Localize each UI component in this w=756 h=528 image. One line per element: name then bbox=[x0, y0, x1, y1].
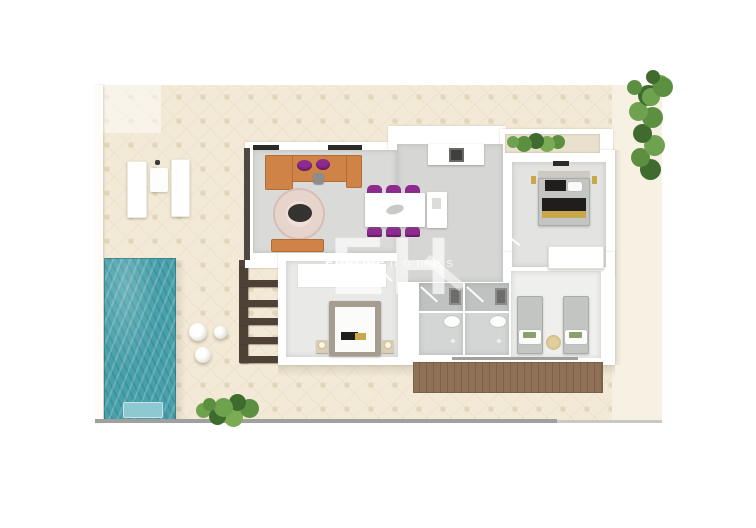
twin-bed-1 bbox=[517, 296, 543, 354]
potted-plant-bottom bbox=[203, 398, 216, 411]
bath2-drain bbox=[496, 338, 502, 344]
kitchen-sink bbox=[449, 148, 464, 162]
terrace-corner-patch bbox=[103, 85, 161, 133]
house-east-shadow bbox=[615, 150, 622, 365]
bed-right-pillow-white bbox=[568, 182, 582, 191]
wood-deck bbox=[413, 362, 603, 393]
corner-sofa-right-arm bbox=[346, 155, 362, 188]
lounger-side-table bbox=[150, 168, 168, 192]
pergola-beam-vertical bbox=[239, 260, 248, 363]
pool-step bbox=[123, 402, 163, 418]
master-pillow-gold bbox=[355, 333, 366, 340]
bedroom-right-dresser bbox=[548, 246, 604, 269]
twin-bed-2-plant-print bbox=[569, 332, 582, 338]
living-west-wall bbox=[244, 148, 250, 260]
bath2-shower-screen bbox=[465, 311, 509, 313]
wall-lamp-right bbox=[592, 176, 597, 184]
sofa-cushion-2 bbox=[316, 159, 330, 170]
speaker-dot bbox=[155, 160, 160, 165]
round-pouf-3 bbox=[195, 347, 211, 363]
window-lintel-1 bbox=[253, 145, 279, 150]
bath1-toilet bbox=[444, 316, 460, 327]
nightstand-lamp bbox=[319, 342, 325, 348]
coffee-table bbox=[288, 204, 312, 222]
twin-bed-2 bbox=[563, 296, 589, 354]
bath1-drain bbox=[450, 338, 456, 344]
hedge-top-right bbox=[627, 80, 642, 95]
watermark-brand-light: homes bbox=[390, 255, 459, 270]
plot-left-wall bbox=[95, 85, 103, 423]
wall-lamp-left bbox=[531, 176, 536, 184]
twin-room-rug bbox=[546, 335, 561, 350]
sun-lounger-right bbox=[171, 159, 190, 217]
watermark-brand-bold: EUROPE bbox=[325, 255, 386, 270]
watermark-brand: EUROPEhomes bbox=[325, 255, 459, 270]
bath2-shower-column bbox=[495, 288, 507, 305]
twin-bed-1-plant-print bbox=[523, 332, 536, 338]
floorplan-render: EH EUROPEhomes bbox=[0, 0, 756, 528]
sofa-cushion-1 bbox=[297, 160, 312, 171]
corner-sofa-left-arm bbox=[265, 155, 293, 190]
nightstand-lamp bbox=[385, 342, 391, 348]
planter-soil bbox=[505, 134, 600, 153]
bench bbox=[271, 239, 324, 252]
round-pouf-2 bbox=[214, 326, 227, 339]
master-bed-mattress bbox=[335, 307, 375, 352]
bed-right-blanket-black bbox=[542, 198, 586, 211]
window-lintel-2 bbox=[328, 145, 362, 150]
pool-shadow bbox=[176, 260, 186, 420]
bath2-toilet bbox=[490, 316, 506, 327]
deck-step-line bbox=[452, 357, 578, 360]
bed-right-blanket-gold bbox=[542, 211, 586, 218]
round-pouf-1 bbox=[189, 323, 207, 341]
tv-wall-mark bbox=[553, 161, 569, 166]
planter-plants bbox=[507, 136, 519, 148]
bed-right-pillow-black bbox=[545, 180, 566, 191]
plot-bottom-edge-light bbox=[557, 420, 662, 423]
plot-bottom-edge bbox=[95, 419, 557, 423]
swimming-pool bbox=[104, 258, 176, 420]
sun-lounger-left bbox=[127, 161, 147, 218]
sofa-side-table bbox=[313, 173, 324, 184]
hedge-corner bbox=[646, 70, 660, 84]
island-detail bbox=[432, 198, 441, 209]
